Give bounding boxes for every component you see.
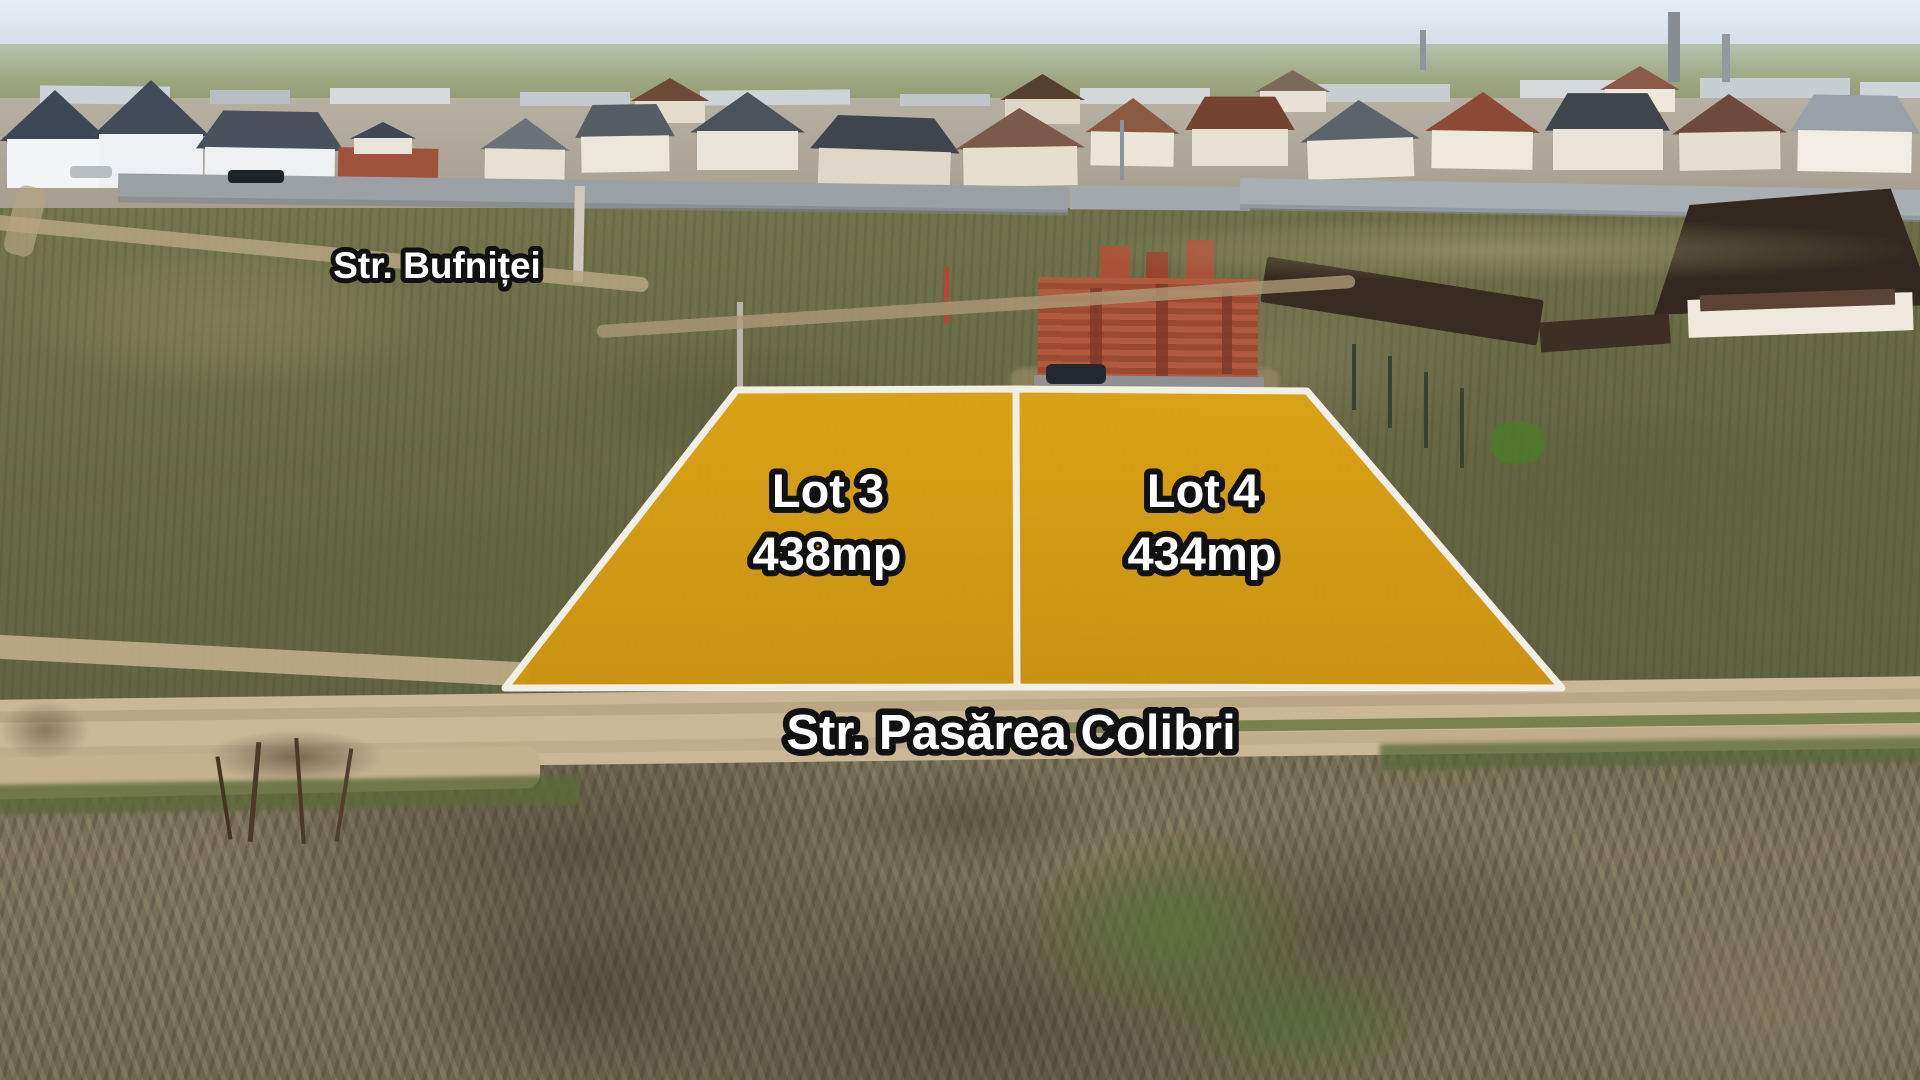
annotation-overlay: Str. Bufniței Lot 3 438mp Lot 4 434mp St…	[0, 0, 1920, 1080]
street-label-bufnitei: Str. Bufniței	[333, 245, 541, 287]
aerial-photo: Str. Bufniței Lot 3 438mp Lot 4 434mp St…	[0, 0, 1920, 1080]
lot-4-highlight	[1016, 389, 1562, 688]
lot-3-area: 438mp	[753, 527, 902, 580]
lot-4-name: Lot 4	[1147, 464, 1259, 517]
lot-3-name: Lot 3	[772, 464, 884, 517]
street-label-pasarea-colibri: Str. Pasărea Colibri	[786, 706, 1235, 760]
lot-4-area: 434mp	[1128, 527, 1277, 580]
